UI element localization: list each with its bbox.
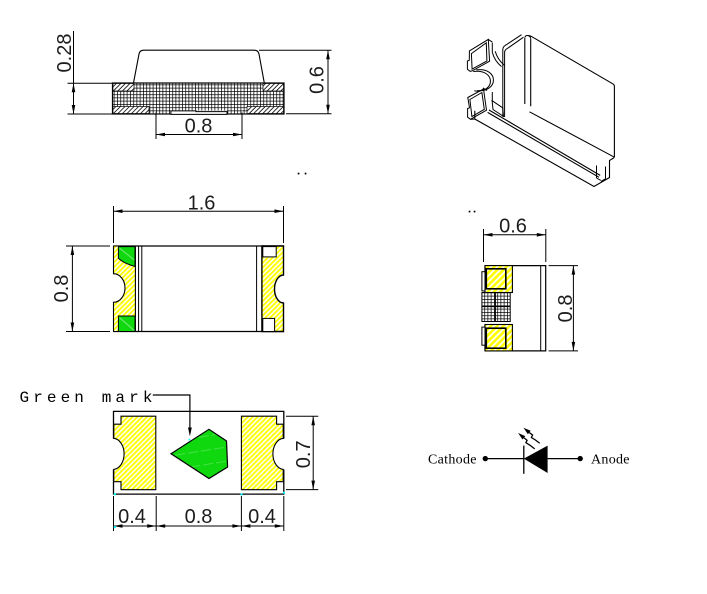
svg-text:1.6: 1.6 bbox=[188, 192, 216, 214]
svg-text:0.4: 0.4 bbox=[248, 506, 276, 528]
svg-text:0.8: 0.8 bbox=[185, 116, 213, 138]
svg-text:0.6: 0.6 bbox=[499, 215, 527, 237]
svg-text:Green mark: Green mark bbox=[20, 389, 157, 407]
svg-text:0.8: 0.8 bbox=[51, 275, 73, 303]
svg-text:0.28: 0.28 bbox=[54, 34, 76, 73]
svg-text:0.7: 0.7 bbox=[293, 440, 315, 468]
svg-text:0.4: 0.4 bbox=[118, 506, 146, 528]
svg-text:0.8: 0.8 bbox=[555, 294, 577, 322]
svg-text:Anode: Anode bbox=[591, 453, 630, 468]
svg-text:0.8: 0.8 bbox=[185, 506, 213, 528]
svg-text:0.6: 0.6 bbox=[307, 66, 329, 94]
svg-text:Cathode: Cathode bbox=[428, 453, 477, 468]
